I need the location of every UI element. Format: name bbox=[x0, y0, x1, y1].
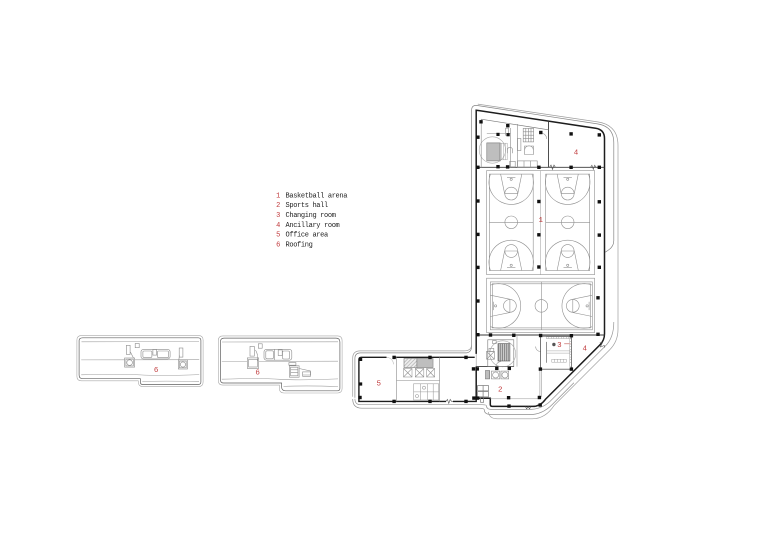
svg-text:4: 4 bbox=[276, 222, 280, 230]
svg-text:Changing room: Changing room bbox=[286, 212, 336, 220]
svg-text:Sports hall: Sports hall bbox=[286, 202, 329, 210]
svg-text:Office area: Office area bbox=[286, 232, 329, 240]
svg-text:2: 2 bbox=[498, 386, 503, 394]
svg-text:1: 1 bbox=[538, 217, 543, 225]
svg-text:1: 1 bbox=[276, 192, 280, 200]
svg-text:4: 4 bbox=[583, 346, 588, 354]
svg-text:5: 5 bbox=[377, 381, 382, 389]
svg-text:6: 6 bbox=[154, 367, 159, 375]
svg-text:3: 3 bbox=[276, 212, 280, 220]
svg-text:Basketball arena: Basketball arena bbox=[286, 192, 348, 200]
svg-text:6: 6 bbox=[276, 241, 280, 249]
svg-text:2: 2 bbox=[276, 202, 280, 210]
svg-text:6: 6 bbox=[255, 370, 260, 378]
svg-text:4: 4 bbox=[574, 150, 579, 158]
svg-text:Ancillary room: Ancillary room bbox=[286, 222, 340, 230]
svg-text:3: 3 bbox=[557, 342, 562, 350]
svg-text:Roofing: Roofing bbox=[286, 241, 313, 249]
svg-text:5: 5 bbox=[276, 232, 280, 240]
